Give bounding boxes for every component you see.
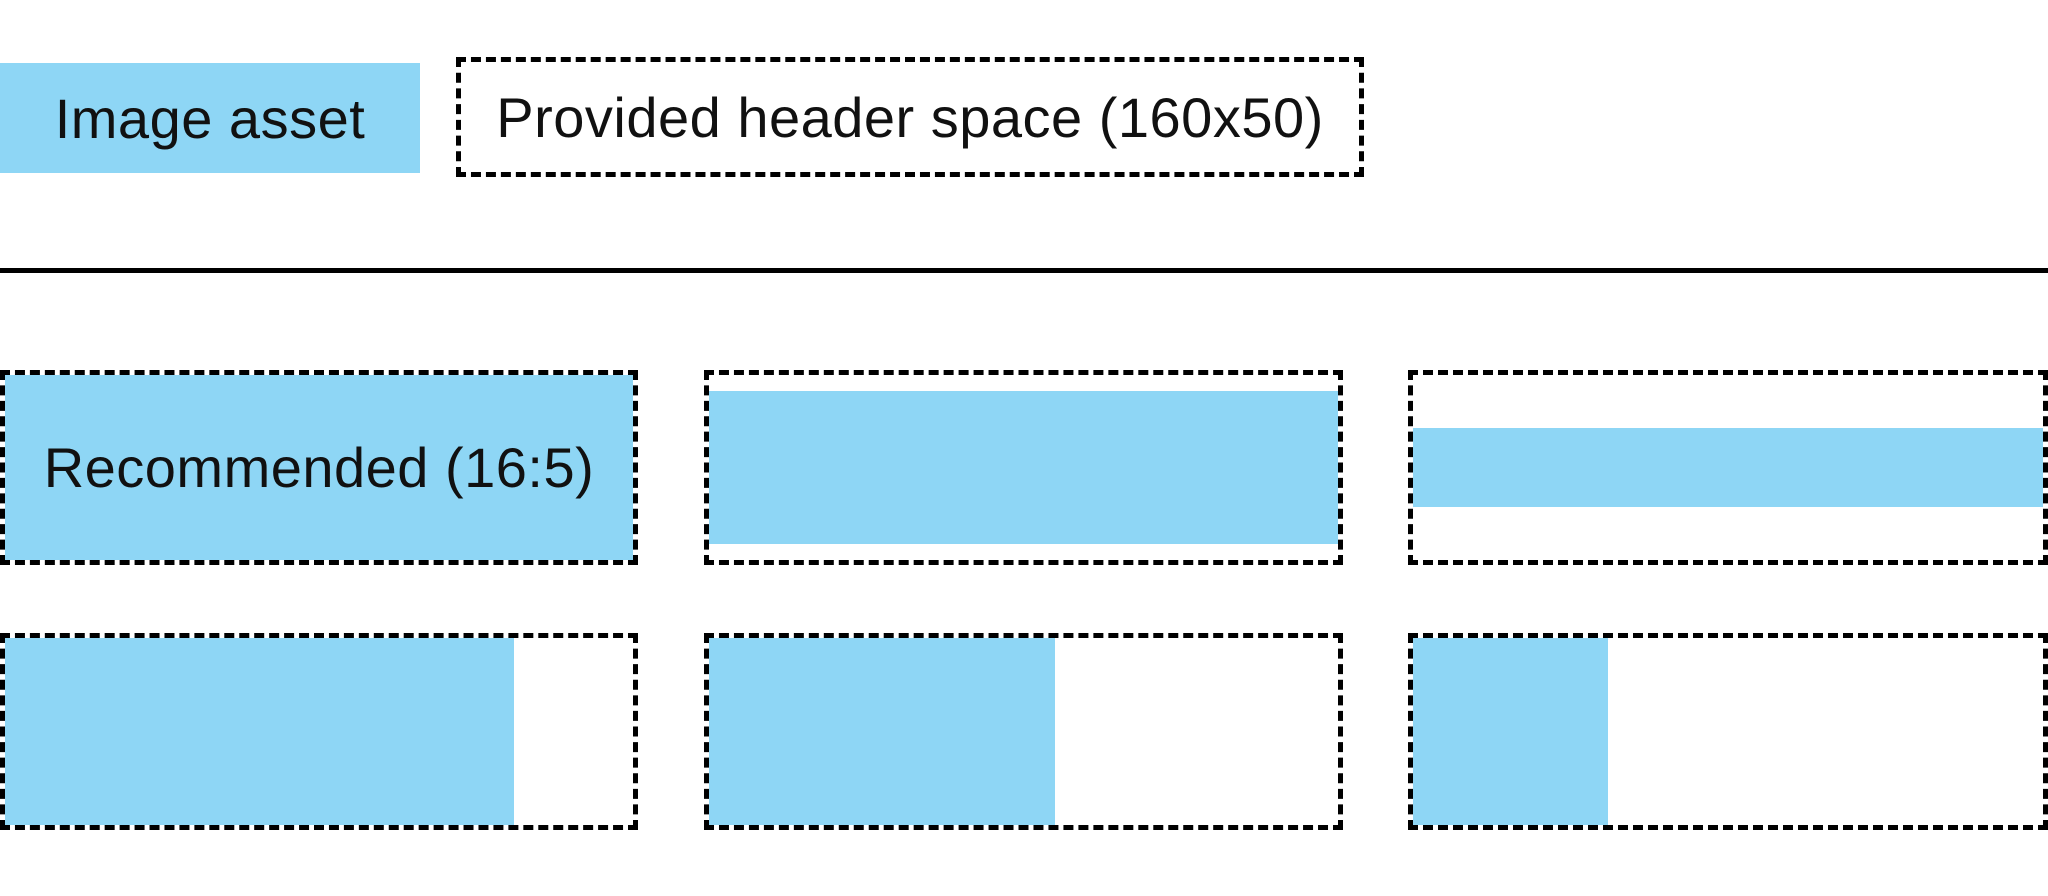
example-box-narrow-large <box>0 633 638 830</box>
image-asset-fill: Recommended (16:5) <box>5 375 633 560</box>
recommended-label: Recommended (16:5) <box>44 435 595 500</box>
header-space-label: Provided header space (160x50) <box>496 85 1324 150</box>
image-asset-fill <box>709 391 1338 545</box>
example-box-recommended: Recommended (16:5) <box>0 370 638 565</box>
image-asset-fill <box>1413 638 1608 825</box>
image-asset-label: Image asset <box>55 86 366 151</box>
image-asset-fill <box>1413 428 2043 508</box>
example-box-narrow-medium <box>704 633 1343 830</box>
example-box-wide-thin <box>1408 370 2048 565</box>
image-asset-fill <box>709 638 1055 825</box>
example-box-narrow-small <box>1408 633 2048 830</box>
section-divider <box>0 268 2048 273</box>
image-asset-fill <box>5 638 514 825</box>
image-asset-swatch: Image asset <box>0 63 420 173</box>
example-box-wide-medium <box>704 370 1343 565</box>
header-space-legend-box: Provided header space (160x50) <box>456 57 1364 177</box>
